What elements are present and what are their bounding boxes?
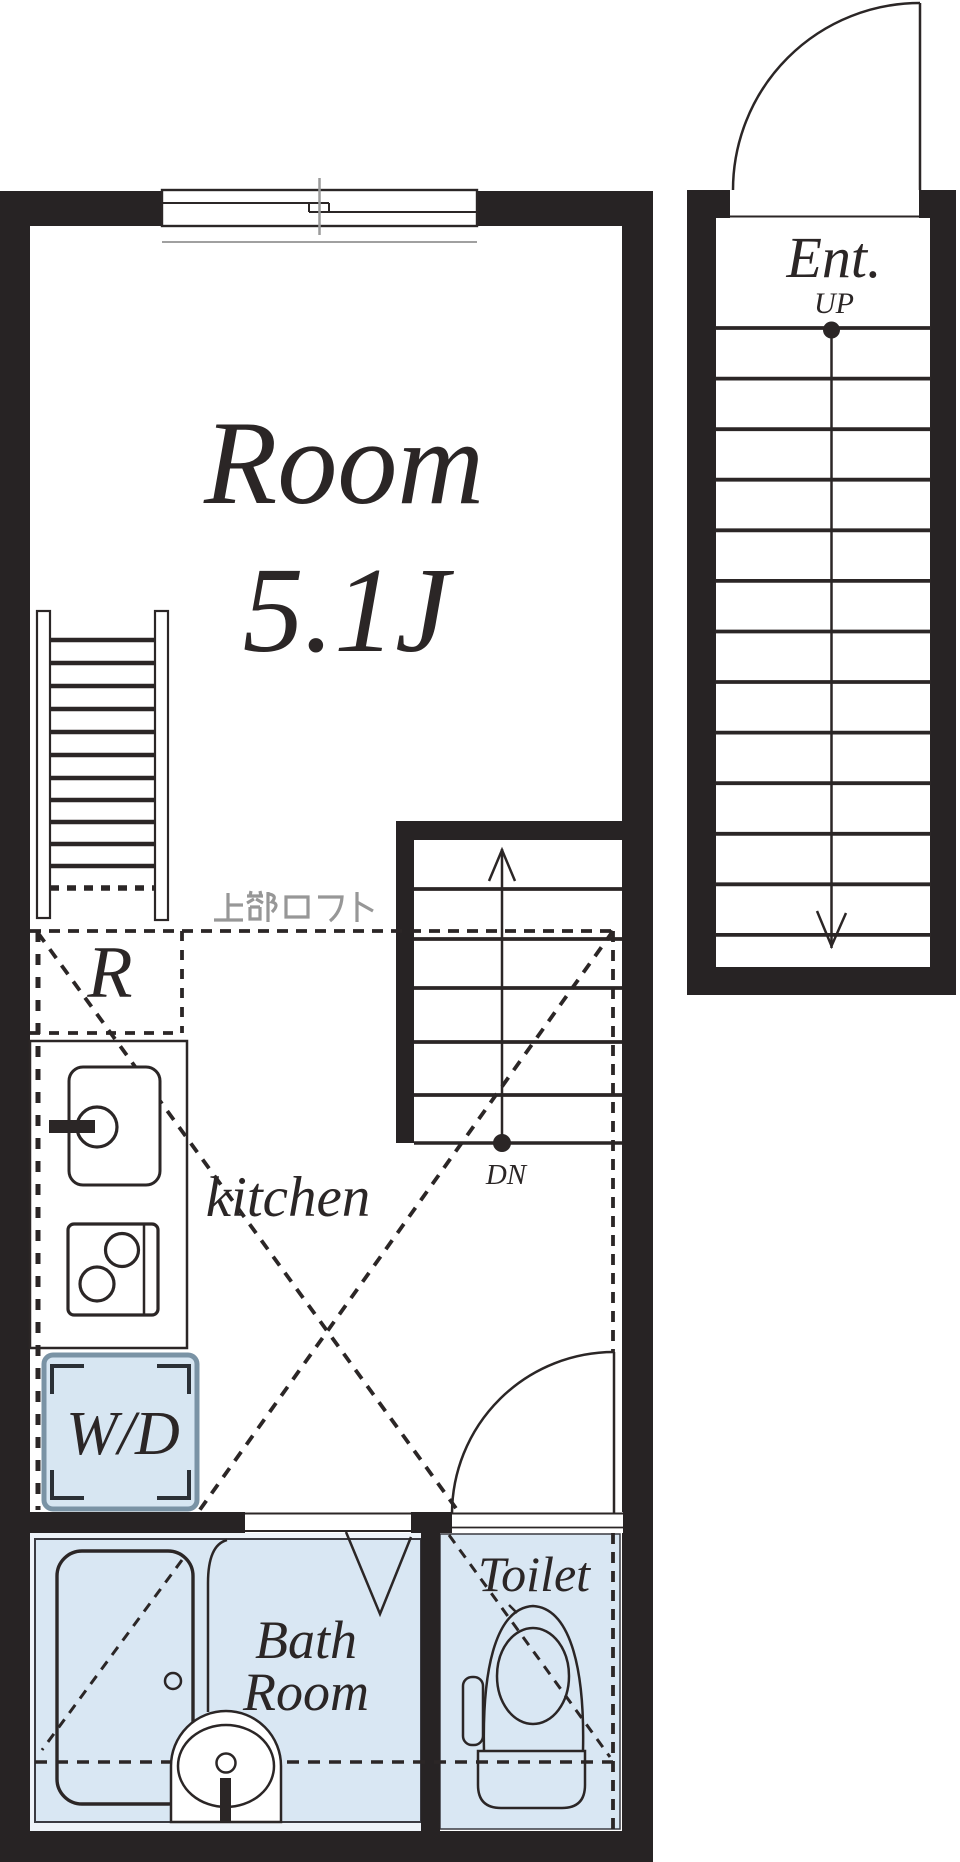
svg-text:kitchen: kitchen [206, 1166, 371, 1229]
svg-text:Room: Room [242, 1662, 369, 1722]
svg-text:Room: Room [203, 396, 484, 529]
svg-text:Toilet: Toilet [478, 1546, 591, 1602]
svg-text:5.1J: 5.1J [243, 543, 455, 678]
svg-text:W/D: W/D [66, 1400, 180, 1468]
svg-text:UP: UP [814, 287, 854, 320]
svg-text:Ent.: Ent. [785, 225, 881, 290]
svg-text:R: R [86, 932, 132, 1014]
svg-text:Bath: Bath [255, 1610, 357, 1670]
svg-text:DN: DN [485, 1159, 528, 1191]
